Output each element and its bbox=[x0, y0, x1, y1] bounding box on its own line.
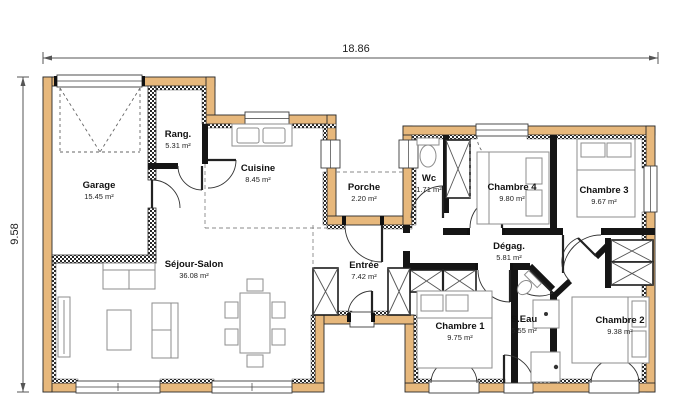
room-label-chambre2: Chambre 2 bbox=[595, 315, 644, 326]
exterior-walls bbox=[43, 77, 655, 392]
furniture bbox=[58, 124, 649, 382]
chair bbox=[247, 279, 263, 291]
room-area-chambre2: 9.38 m² bbox=[607, 327, 633, 336]
room-area-cuisine: 8.45 m² bbox=[245, 175, 271, 184]
room-area-sejour: 36.08 m² bbox=[179, 271, 209, 280]
room-area-entree: 7.42 m² bbox=[351, 272, 377, 281]
room-label-porche: Porche bbox=[348, 182, 380, 193]
windows bbox=[57, 75, 657, 393]
coffee-table bbox=[107, 310, 131, 350]
shower-head bbox=[554, 365, 558, 369]
floor-plan-page: 18.86 9.58 bbox=[0, 0, 683, 416]
kitchen-sink bbox=[237, 128, 259, 143]
chair bbox=[225, 302, 238, 318]
room-area-chambre3: 9.67 m² bbox=[591, 197, 617, 206]
room-label-wc: Wc bbox=[422, 173, 436, 184]
room-label-chambre3: Chambre 3 bbox=[579, 185, 628, 196]
room-label-garage: Garage bbox=[83, 180, 116, 191]
toilet-tank bbox=[417, 138, 439, 145]
room-area-garage: 15.45 m² bbox=[84, 192, 114, 201]
room-area-wc: 1.71 m² bbox=[416, 185, 442, 194]
chair bbox=[225, 329, 238, 345]
room-label-chambre4: Chambre 4 bbox=[487, 182, 537, 193]
room-label-entree: Entrée bbox=[349, 260, 379, 271]
arrow-up-icon bbox=[21, 77, 26, 86]
room-label-rang: Rang. bbox=[165, 129, 191, 140]
arrow-left-icon bbox=[43, 56, 52, 61]
chambre2-french-window bbox=[589, 381, 639, 393]
room-area-rang: 5.31 m² bbox=[165, 141, 191, 150]
chair bbox=[272, 302, 285, 318]
floor-plan-svg: 18.86 9.58 bbox=[0, 0, 683, 416]
chambre1-french-window bbox=[429, 381, 479, 393]
room-label-chambre1: Chambre 1 bbox=[435, 321, 485, 332]
room-label-degag: Dégag. bbox=[493, 241, 525, 252]
kitchen-sink bbox=[263, 128, 285, 143]
room-label-sejour: Séjour-Salon bbox=[165, 259, 224, 270]
room-label-cuisine: Cuisine bbox=[241, 163, 275, 174]
room-label-seau: S.Eau bbox=[511, 314, 538, 325]
dining-table bbox=[240, 293, 270, 353]
chair bbox=[247, 355, 263, 367]
seau-door-opening bbox=[504, 383, 533, 393]
height-dimension-label: 9.58 bbox=[9, 223, 21, 244]
room-area-chambre1: 9.75 m² bbox=[447, 333, 473, 342]
chambre2-door bbox=[578, 238, 596, 256]
chair bbox=[272, 329, 285, 345]
entree-rear-door-opening bbox=[350, 312, 374, 327]
room-area-seau: 5.55 m² bbox=[511, 326, 537, 335]
room-area-porche: 2.20 m² bbox=[351, 194, 377, 203]
arrow-down-icon bbox=[21, 383, 26, 392]
room-area-degag: 5.81 m² bbox=[496, 253, 522, 262]
toilet-bowl bbox=[420, 145, 436, 167]
width-dimension-label: 18.86 bbox=[342, 43, 370, 55]
room-area-chambre4: 9.80 m² bbox=[499, 194, 525, 203]
arrow-right-icon bbox=[649, 56, 658, 61]
washbasin-drain bbox=[544, 312, 548, 316]
